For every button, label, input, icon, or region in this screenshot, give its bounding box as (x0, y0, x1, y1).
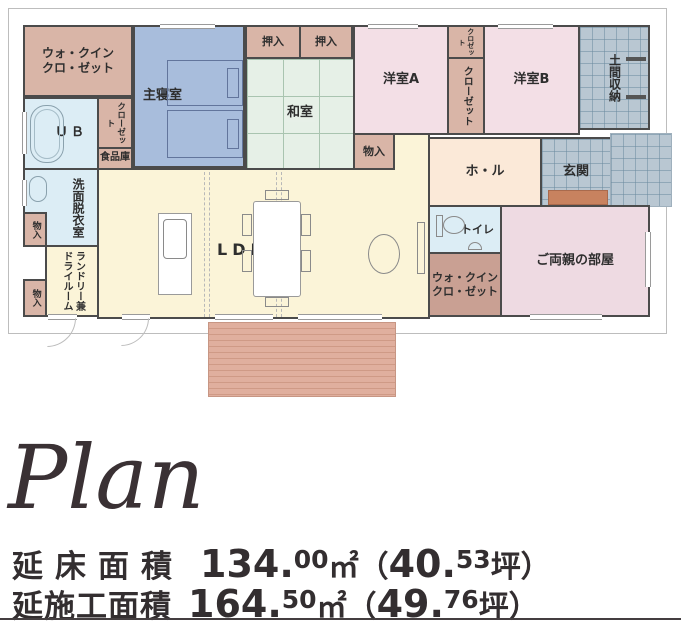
window-marker (368, 24, 418, 29)
page: ウォ・クイン クロ・ゼット 主寝室 押入 押入 和室 洋室A クロゼット (0, 0, 681, 621)
toilet-bowl-icon (443, 216, 465, 234)
bed-pillow-icon (227, 119, 239, 149)
washroom-label: 洗面脱衣室 (70, 178, 85, 238)
round-table-icon (368, 234, 400, 274)
construction-area-tsubo-decimal: 76 (444, 585, 479, 614)
chair-icon (242, 214, 252, 236)
window-marker (498, 24, 553, 29)
walk-in-closet-1-label-line2: クロ・ゼット (42, 61, 114, 76)
room-oshiire-2: 押入 (299, 25, 353, 59)
total-floor-area-tsubo-decimal: 53 (456, 545, 491, 574)
monoire-1-label: 物入 (29, 221, 40, 239)
total-floor-area-label: 延床面積 (12, 541, 184, 586)
room-parents: ご両親の部屋 (500, 205, 650, 317)
doma-storage-label: 土間収納 (607, 54, 622, 102)
total-floor-area-tsubo-unit: 坪） (491, 542, 551, 586)
total-floor-area-tsubo: 40. (389, 542, 456, 586)
door-arc (121, 318, 149, 346)
room-monoire-1: 物入 (23, 212, 47, 247)
construction-area-m2: 164. (188, 582, 282, 621)
entrance-step (548, 190, 608, 205)
oshiire-1-label: 押入 (262, 35, 284, 49)
washitsu-label: 和室 (285, 105, 315, 121)
sink-icon (29, 176, 47, 202)
chair-icon (265, 297, 289, 307)
monoire-2-label: 物入 (29, 289, 40, 307)
window-marker (530, 314, 602, 320)
room-closet-ub: クローゼット (97, 97, 133, 149)
room-walk-in-closet-2: ウォ・クイン クロ・ゼット (428, 252, 502, 317)
kitchen-sink-icon (163, 219, 187, 259)
yoshitsu-a-label: 洋室A (383, 72, 419, 88)
closet-middle-label: クローゼット (460, 66, 473, 126)
room-monoire-3: 物入 (353, 133, 395, 170)
room-walk-in-closet-1: ウォ・クイン クロ・ゼット (23, 25, 133, 97)
room-washitsu: 和室 (245, 57, 355, 170)
pantry-label: 食品庫 (100, 152, 130, 165)
window-marker (22, 180, 27, 206)
plan-title: Plan (8, 434, 205, 522)
genkan-label: 玄関 (563, 164, 589, 180)
wood-deck (208, 322, 396, 397)
room-laundry: ランドリー兼ドライルーム (45, 245, 99, 317)
room-hall: ホ・ル (428, 137, 542, 207)
room-yoshitsu-a: 洋室A (353, 25, 449, 135)
total-floor-area-m2: 134. (200, 542, 294, 586)
room-yoshitsu-b: 洋室B (483, 25, 580, 135)
sofa-icon (417, 222, 425, 274)
total-floor-area-m2-unit: ㎡（ (329, 542, 389, 586)
room-pantry: 食品庫 (97, 147, 133, 170)
window-marker (215, 314, 273, 320)
bed-pillow-icon (227, 68, 239, 98)
window-marker (22, 112, 27, 154)
hand-sink-icon (468, 242, 482, 250)
room-closet-top: クロゼット (447, 25, 485, 59)
walk-in-closet-2-label-line2: クロ・ゼット (432, 285, 498, 299)
toilet-tank-icon (436, 215, 443, 237)
closet-top-label: クロゼット (457, 27, 475, 57)
sliding-track-line (204, 172, 205, 317)
shelf-icon (626, 57, 646, 61)
room-label: ウォ・クイン クロ・ゼット (432, 271, 498, 299)
bottom-divider (0, 618, 681, 620)
chair-icon (301, 250, 311, 272)
yoshitsu-b-label: 洋室B (514, 72, 550, 88)
entrance-porch (610, 133, 672, 207)
construction-area-tsubo: 49. (377, 582, 444, 621)
bathtub-inner-icon (34, 109, 60, 159)
oshiire-2-label: 押入 (315, 35, 337, 49)
ldk-corridor (393, 133, 430, 170)
room-oshiire-1: 押入 (245, 25, 301, 59)
construction-area-label: 延施工面積 (12, 581, 172, 621)
sliding-track-line (209, 172, 210, 317)
parents-room-label: ご両親の部屋 (536, 253, 614, 269)
construction-area-tsubo-unit: 坪） (479, 582, 539, 621)
room-label: ウォ・クイン クロ・ゼット (42, 46, 114, 76)
toilet-label: トイレ (461, 223, 494, 237)
window-marker (645, 232, 651, 287)
door-arc (47, 318, 76, 347)
hall-label: ホ・ル (465, 164, 504, 180)
construction-area-line: 延施工面積 164. 50 ㎡（ 49. 76 坪） (12, 581, 539, 621)
monoire-3-label: 物入 (363, 145, 385, 159)
room-doma-storage: 土間収納 (578, 25, 650, 130)
total-floor-area-m2-decimal: 00 (294, 545, 329, 574)
dining-table (253, 201, 301, 297)
room-closet-middle: クローゼット (447, 57, 485, 135)
construction-area-m2-decimal: 50 (282, 585, 317, 614)
laundry-label-line1: ランドリー兼 (74, 251, 85, 311)
chair-icon (265, 190, 289, 200)
shelf-icon (626, 95, 646, 99)
walk-in-closet-2-label-line1: ウォ・クイン (432, 271, 498, 285)
window-marker (298, 314, 382, 320)
laundry-label: ランドリー兼ドライルーム (60, 247, 85, 315)
construction-area-m2-unit: ㎡（ (317, 582, 377, 621)
room-monoire-2: 物入 (23, 279, 47, 317)
closet-ub-label: クローゼット (104, 99, 125, 147)
total-floor-area-line: 延床面積 134. 00 ㎡（ 40. 53 坪） (12, 541, 551, 586)
laundry-label-line2: ドライルーム (61, 251, 72, 311)
chair-icon (242, 250, 252, 272)
walk-in-closet-1-label-line1: ウォ・クイン (42, 46, 114, 61)
floor-plan: ウォ・クイン クロ・ゼット 主寝室 押入 押入 和室 洋室A クロゼット (0, 0, 681, 440)
chair-icon (301, 214, 311, 236)
window-marker (160, 24, 215, 29)
